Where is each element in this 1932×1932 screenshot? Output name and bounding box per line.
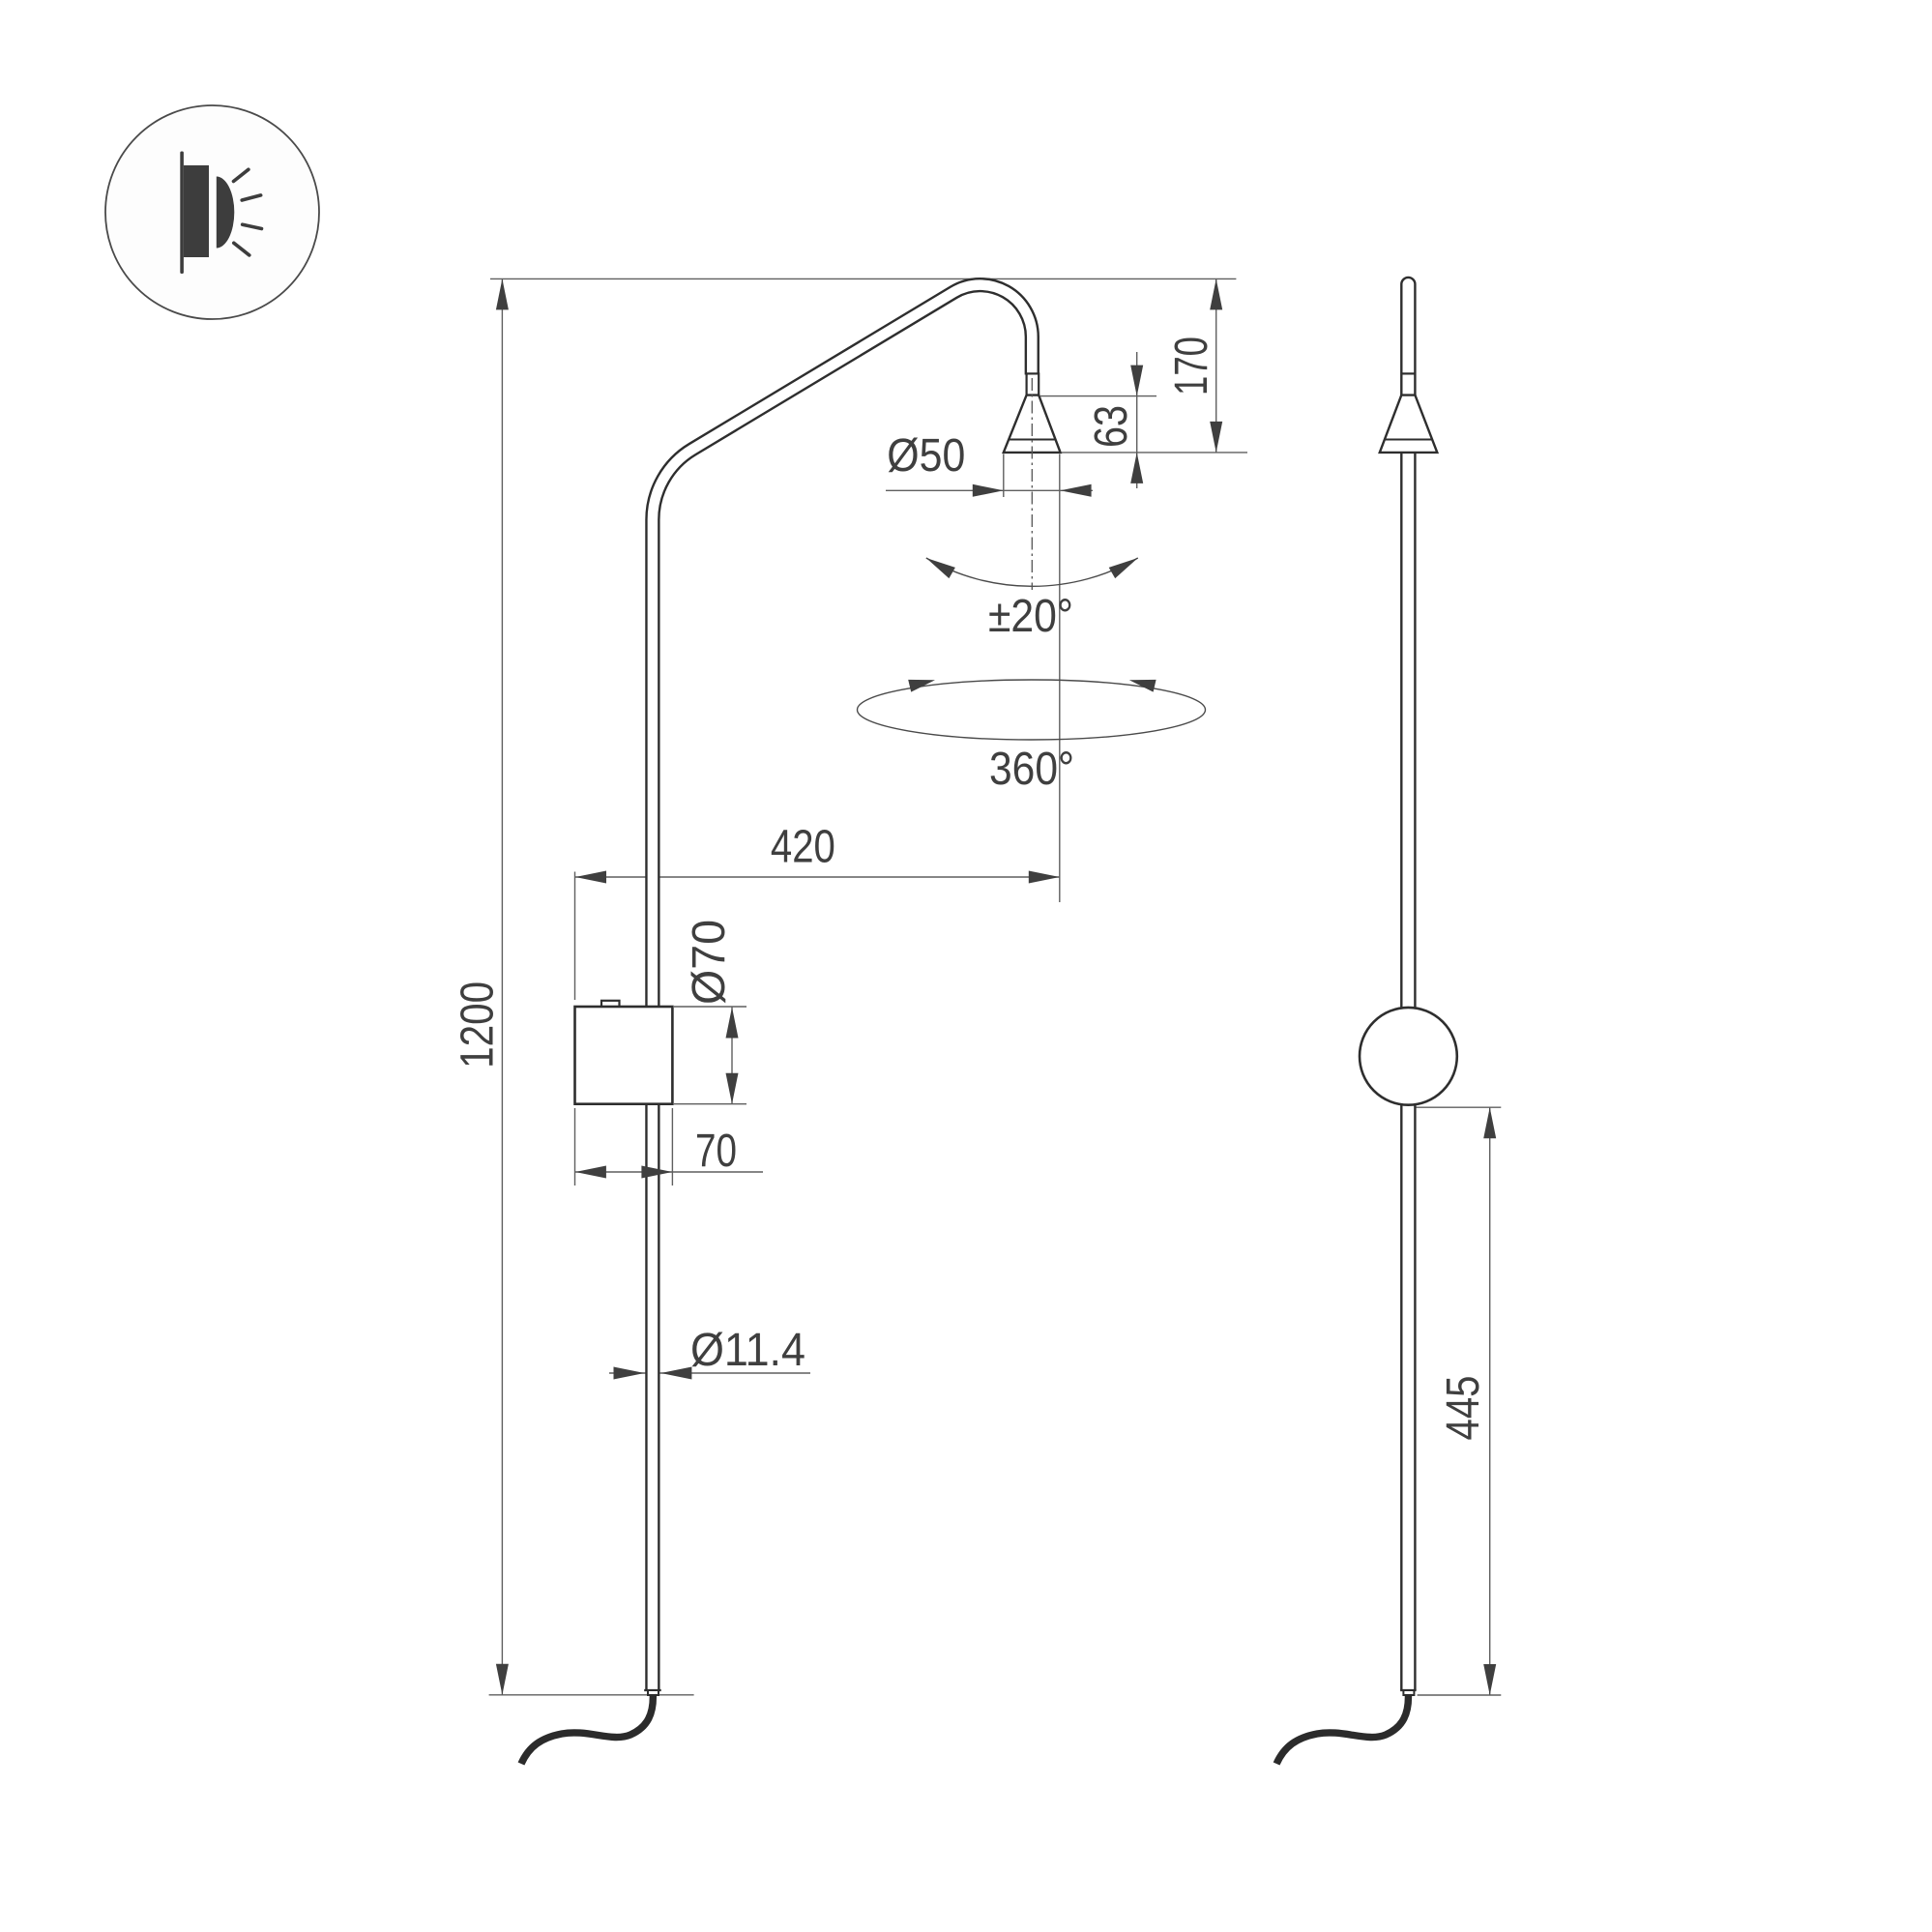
svg-text:420: 420 [771,822,835,873]
svg-text:Ø70: Ø70 [684,920,735,1005]
svg-text:360°: 360° [989,744,1074,795]
svg-text:445: 445 [1438,1376,1489,1441]
svg-text:63: 63 [1086,405,1137,448]
svg-text:Ø11.4: Ø11.4 [690,1325,805,1376]
svg-text:1200: 1200 [452,981,503,1068]
svg-text:70: 70 [695,1126,737,1177]
svg-text:±20°: ±20° [988,591,1073,642]
svg-text:170: 170 [1166,337,1217,395]
svg-text:Ø50: Ø50 [887,430,965,482]
